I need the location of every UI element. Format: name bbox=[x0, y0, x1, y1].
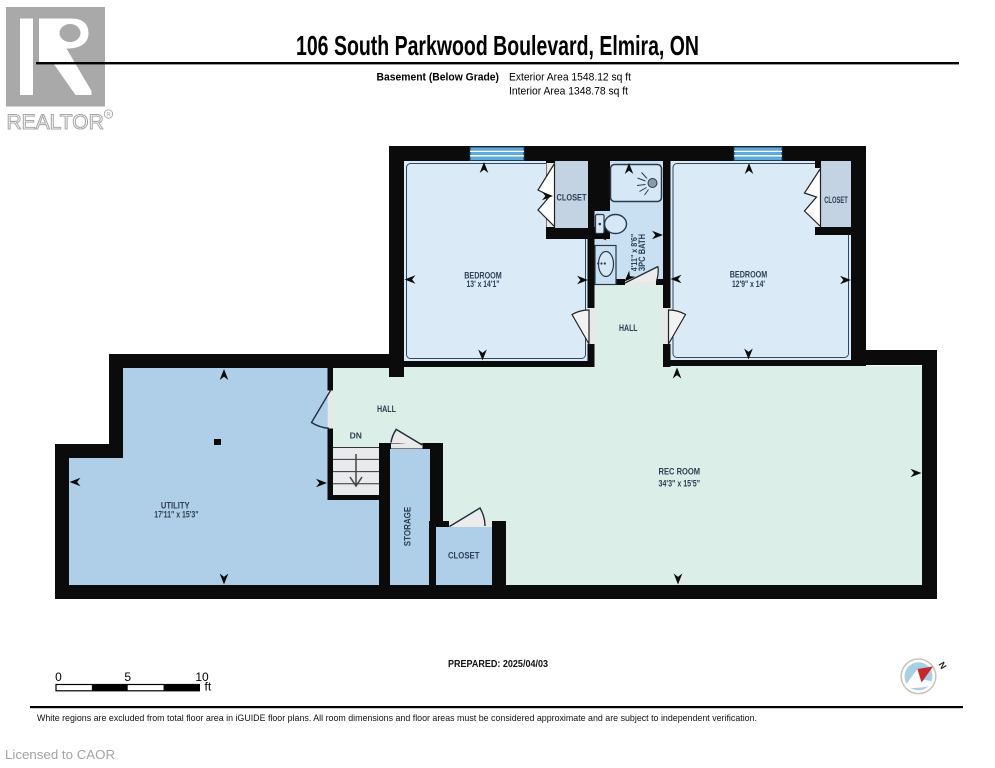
svg-text:34'3" x 15'5": 34'3" x 15'5" bbox=[659, 479, 701, 489]
svg-text:13' x 14'1": 13' x 14'1" bbox=[467, 279, 500, 289]
svg-text:17'11" x 15'3": 17'11" x 15'3" bbox=[154, 509, 198, 519]
svg-text:HALL: HALL bbox=[619, 323, 638, 334]
svg-text:Exterior Area 1548.12 sq ft: Exterior Area 1548.12 sq ft bbox=[509, 72, 631, 84]
svg-text:4'11" x 8'6": 4'11" x 8'6" bbox=[629, 234, 639, 272]
svg-text:White regions are excluded fro: White regions are excluded from total fl… bbox=[37, 713, 757, 723]
svg-text:106 South Parkwood Boulevard,: 106 South Parkwood Boulevard, Elmira, ON bbox=[296, 30, 699, 61]
svg-text:REALTOR: REALTOR bbox=[7, 111, 104, 134]
svg-text:Licensed to CAOR: Licensed to CAOR bbox=[5, 747, 115, 762]
svg-text:R: R bbox=[106, 113, 111, 119]
svg-text:ft: ft bbox=[205, 680, 212, 694]
svg-text:5: 5 bbox=[124, 670, 131, 684]
svg-text:REC ROOM: REC ROOM bbox=[659, 467, 701, 478]
svg-text:CLOSET: CLOSET bbox=[557, 193, 587, 204]
svg-text:DN: DN bbox=[350, 431, 362, 441]
svg-text:CLOSET: CLOSET bbox=[448, 551, 480, 562]
svg-text:CLOSET: CLOSET bbox=[824, 195, 848, 206]
svg-text:Interior Area 1348.78 sq ft: Interior Area 1348.78 sq ft bbox=[509, 86, 628, 98]
svg-text:STORAGE: STORAGE bbox=[403, 507, 413, 547]
svg-text:Basement (Below Grade): Basement (Below Grade) bbox=[377, 72, 500, 84]
svg-text:12'9" x 14': 12'9" x 14' bbox=[732, 279, 765, 289]
svg-text:PREPARED: 2025/04/03: PREPARED: 2025/04/03 bbox=[448, 659, 548, 670]
svg-text:HALL: HALL bbox=[377, 404, 396, 415]
svg-text:0: 0 bbox=[55, 670, 62, 684]
